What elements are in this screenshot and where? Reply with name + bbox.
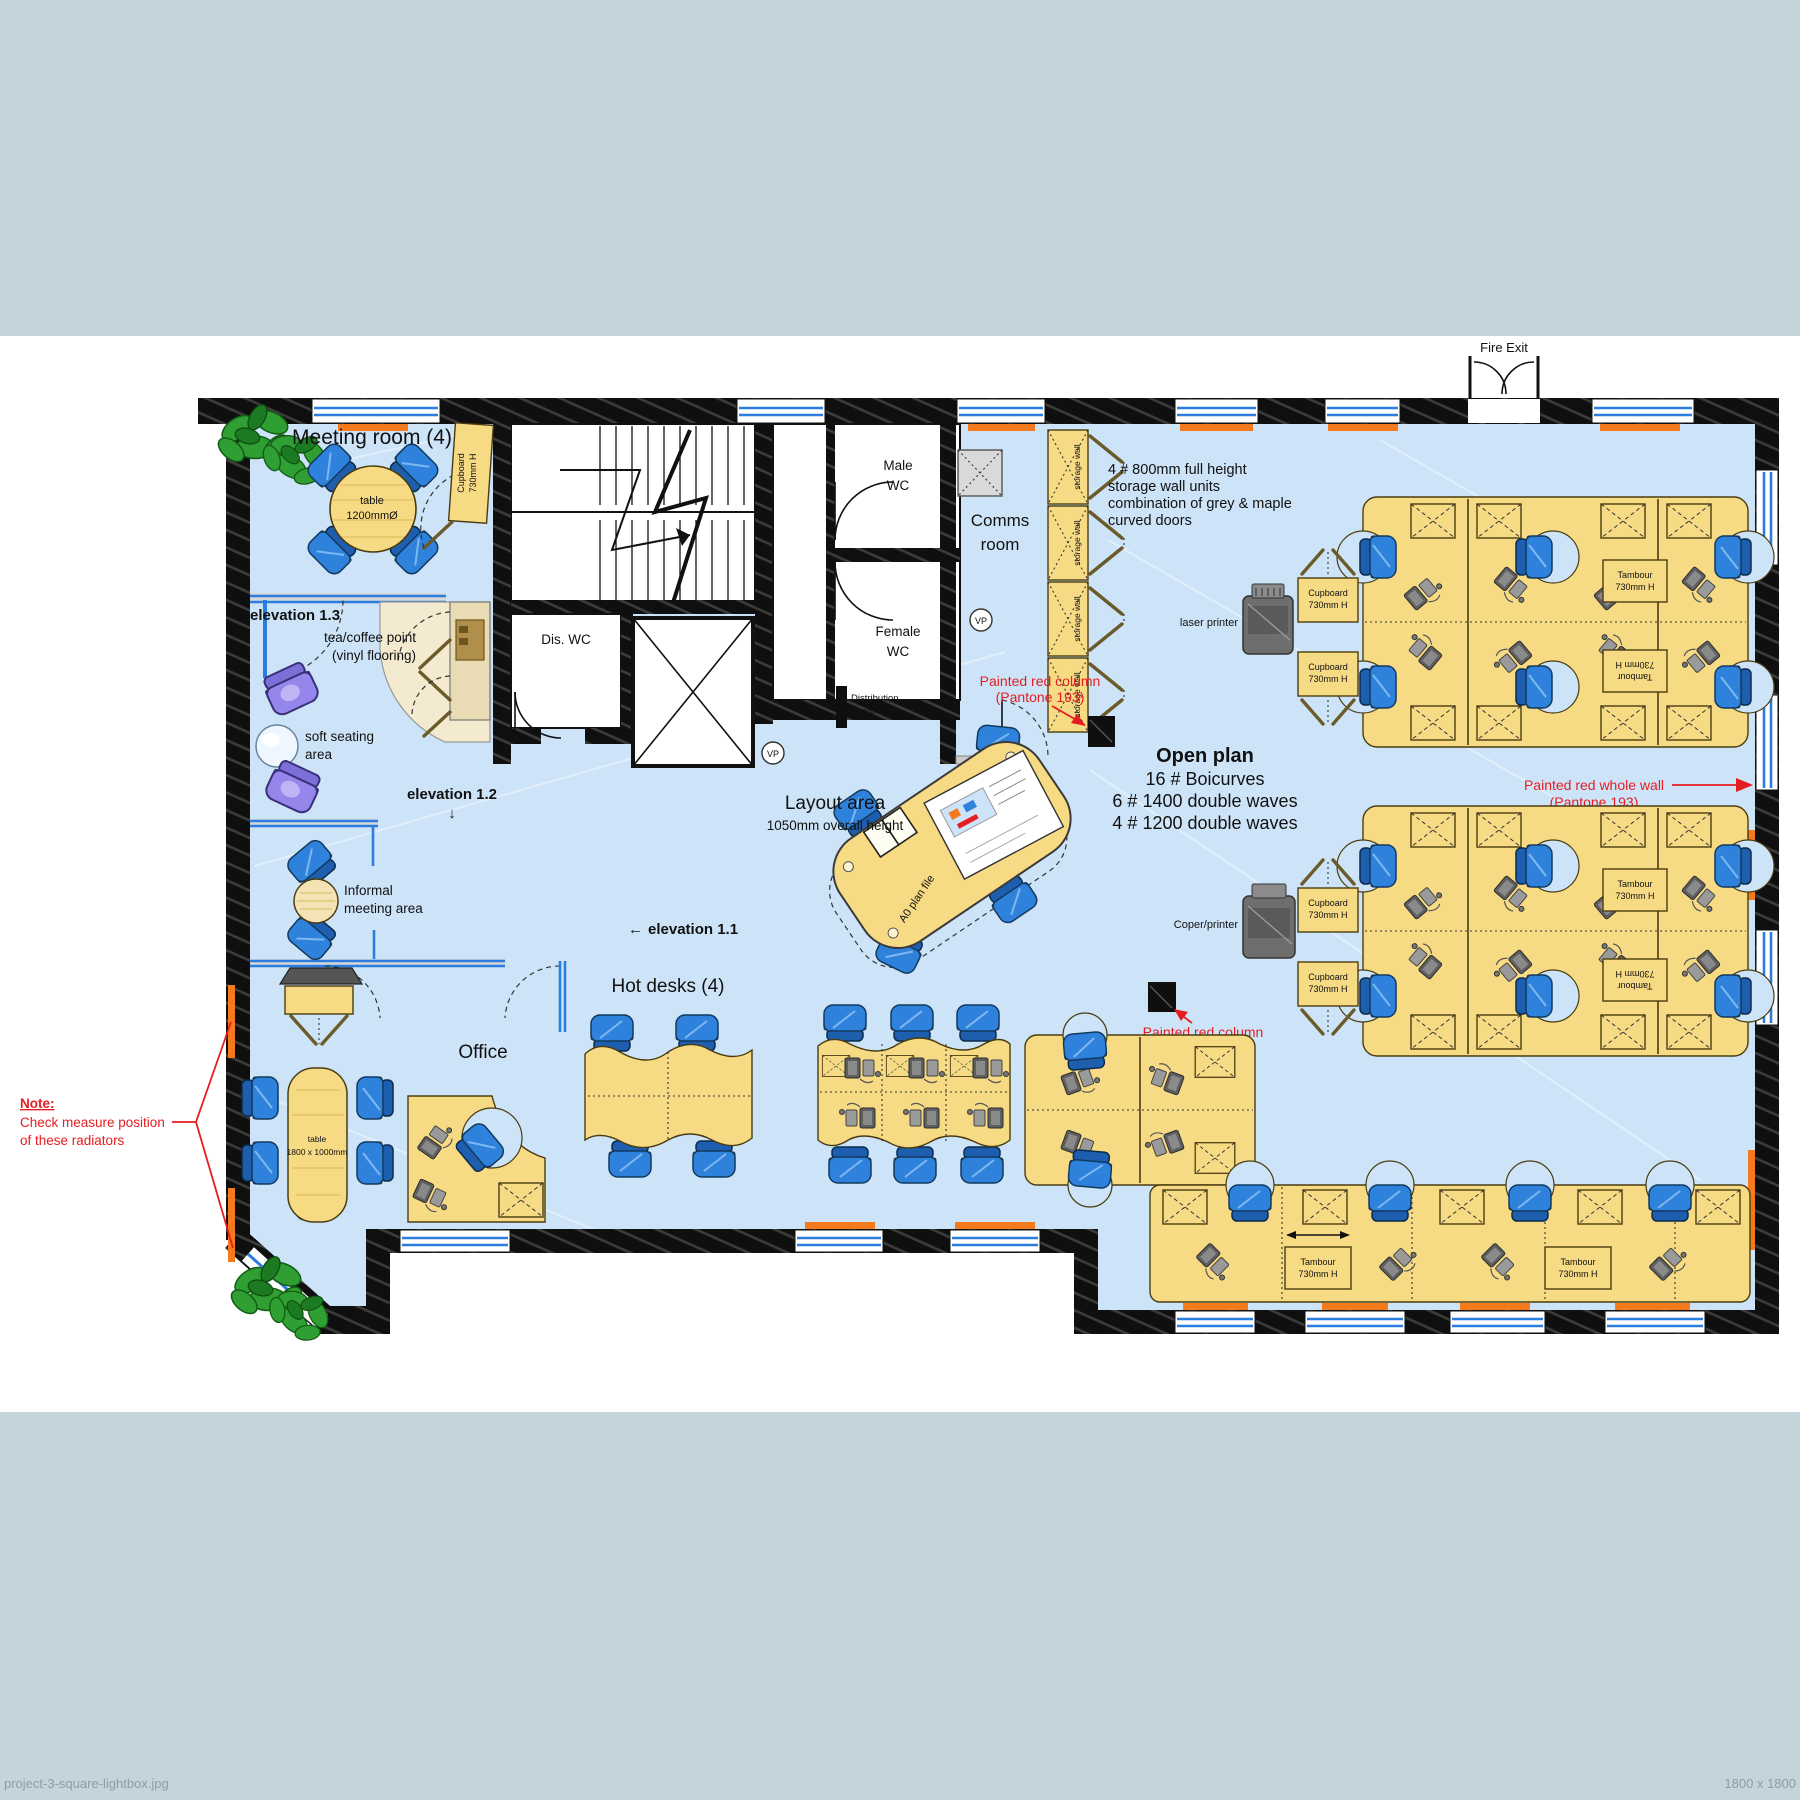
note-line-3: of these radiators xyxy=(20,1133,125,1148)
wave-desk-bank xyxy=(818,1005,1010,1183)
svg-text:730mm H: 730mm H xyxy=(1558,1269,1597,1279)
vp-symbol-comms: VP xyxy=(970,609,992,631)
office-table-label-2: 1800 x 1000mm xyxy=(287,1147,348,1157)
left-arrow-icon: ← xyxy=(628,921,643,938)
open-plan-line-2: 16 # Boicurves xyxy=(1145,769,1264,789)
svg-text:(Pantone 193): (Pantone 193) xyxy=(996,689,1085,705)
tv-screen xyxy=(280,968,362,984)
svg-text:Tambour: Tambour xyxy=(1617,981,1652,991)
radiator-note-1 xyxy=(228,985,235,1058)
svg-text:730mm H: 730mm H xyxy=(1615,969,1654,979)
svg-text:Painted red column: Painted red column xyxy=(980,673,1101,689)
tea-point-label-1: tea/coffee point xyxy=(324,630,416,645)
tambour-unit: Tambour 730mm H xyxy=(1603,959,1667,1001)
svg-text:VP: VP xyxy=(767,749,779,759)
storage-callout-2: storage wall units xyxy=(1108,479,1220,495)
desk-pod-top-right: Tambour 730mm H Tambour 730mm H xyxy=(1337,497,1774,747)
svg-text:730mm H: 730mm H xyxy=(1308,984,1347,994)
desk-pod-lower-left xyxy=(1025,1013,1255,1207)
comms-room-label-1: Comms xyxy=(971,511,1030,530)
note-title: Note: xyxy=(20,1096,55,1111)
svg-text:730mm H: 730mm H xyxy=(1615,891,1654,901)
male-wc-label-1: Male xyxy=(883,458,912,473)
distribution-board xyxy=(836,686,847,728)
meeting-table-label-1: table xyxy=(360,495,384,507)
svg-text:730mm H: 730mm H xyxy=(468,453,478,492)
informal-label-1: Informal xyxy=(344,883,393,898)
meeting-room-label: Meeting room (4) xyxy=(292,426,452,449)
soft-seating-label-1: soft seating xyxy=(305,729,374,744)
office-table-label-1: table xyxy=(308,1134,327,1144)
svg-text:730mm H: 730mm H xyxy=(1308,674,1347,684)
storage-callout-3: combination of grey & maple xyxy=(1108,496,1292,512)
svg-text:storage wall: storage wall xyxy=(1072,444,1082,489)
footer-filename: project-3-square-lightbox.jpg xyxy=(4,1776,169,1791)
open-plan-title: Open plan xyxy=(1156,745,1254,767)
svg-text:Painted red whole wall: Painted red whole wall xyxy=(1524,777,1664,793)
svg-text:Cupboard: Cupboard xyxy=(1308,898,1348,908)
bottom-band xyxy=(0,1412,1800,1800)
distribution-board-label-2: board xyxy=(851,706,875,717)
vp-symbol-corridor: VP xyxy=(762,742,784,764)
svg-text:Cupboard: Cupboard xyxy=(1308,588,1348,598)
svg-text:730mm H: 730mm H xyxy=(1308,910,1347,920)
svg-text:Cupboard: Cupboard xyxy=(1308,662,1348,672)
svg-text:storage wall: storage wall xyxy=(1072,596,1082,641)
svg-text:730mm H: 730mm H xyxy=(1615,582,1654,592)
elevation-1-1-label: elevation 1.1 xyxy=(648,921,738,938)
male-wc-label-2: WC xyxy=(887,478,910,493)
radiator-note-2 xyxy=(228,1188,235,1262)
svg-text:Tambour: Tambour xyxy=(1617,879,1652,889)
floor-plan-page: Fire Exit xyxy=(0,0,1800,1800)
laser-printer-label: laser printer xyxy=(1180,617,1238,629)
fire-exit-label: Fire Exit xyxy=(1480,340,1528,355)
tambour-unit: Tambour 730mm H xyxy=(1545,1247,1611,1289)
elevation-1-3-label: elevation 1.3 xyxy=(250,607,340,624)
svg-text:VP: VP xyxy=(975,616,987,626)
svg-text:730mm H: 730mm H xyxy=(1298,1269,1337,1279)
soft-seating-label-2: area xyxy=(305,747,333,762)
female-wc-label-2: WC xyxy=(887,644,910,659)
female-wc-label-1: Female xyxy=(875,624,920,639)
storage-callout-1: 4 # 800mm full height xyxy=(1108,462,1247,478)
svg-text:storage wall: storage wall xyxy=(1072,520,1082,565)
svg-text:730mm H: 730mm H xyxy=(1308,600,1347,610)
svg-text:Cupboard: Cupboard xyxy=(1308,972,1348,982)
hot-desks-label: Hot desks (4) xyxy=(612,976,725,997)
svg-text:Cupboard: Cupboard xyxy=(456,453,466,493)
note-line-2: Check measure position xyxy=(20,1115,165,1130)
elevation-1-2-label: elevation 1.2 xyxy=(407,786,497,803)
informal-label-2: meeting area xyxy=(344,901,423,916)
sphere-table xyxy=(256,725,298,767)
radiator-note: Note: Check measure position of these ra… xyxy=(20,1022,233,1248)
desk-pod-middle-right: Tambour 730mm H Tambour 730mm H xyxy=(1337,806,1774,1056)
tambour-unit: Tambour 730mm H xyxy=(1603,869,1667,911)
top-band xyxy=(0,0,1800,336)
office-label: Office xyxy=(458,1042,507,1063)
tambour-unit: Tambour 730mm H xyxy=(1603,650,1667,692)
footer-dimensions: 1800 x 1800 xyxy=(1724,1776,1796,1791)
svg-text:730mm H: 730mm H xyxy=(1615,660,1654,670)
layout-area-height-label: 1050mm overall height xyxy=(767,818,904,833)
storage-callout-4: curved doors xyxy=(1108,513,1192,529)
floor-plan-drawing: Fire Exit xyxy=(0,0,1800,1800)
open-plan-line-4: 4 # 1200 double waves xyxy=(1112,813,1297,833)
office-cupboard xyxy=(285,986,353,1014)
tambour-unit: Tambour 730mm H xyxy=(1603,560,1667,602)
svg-text:Tambour: Tambour xyxy=(1300,1257,1335,1267)
copier-printer-label: Coper/printer xyxy=(1174,919,1239,931)
meeting-table-label-2: 1200mmØ xyxy=(346,510,398,522)
comms-room-label-2: room xyxy=(981,535,1020,554)
svg-text:Tambour: Tambour xyxy=(1560,1257,1595,1267)
fire-exit-door xyxy=(1468,356,1540,423)
open-plan-line-3: 6 # 1400 double waves xyxy=(1112,791,1297,811)
distribution-board-label-1: Distribution xyxy=(851,693,899,704)
tea-point-label-2: (vinyl flooring) xyxy=(332,648,416,663)
down-arrow-icon: ↓ xyxy=(448,805,456,822)
dis-wc-label: Dis. WC xyxy=(541,632,591,647)
svg-text:Tambour: Tambour xyxy=(1617,672,1652,682)
layout-area-label: Layout area xyxy=(785,793,886,814)
svg-text:Tambour: Tambour xyxy=(1617,570,1652,580)
